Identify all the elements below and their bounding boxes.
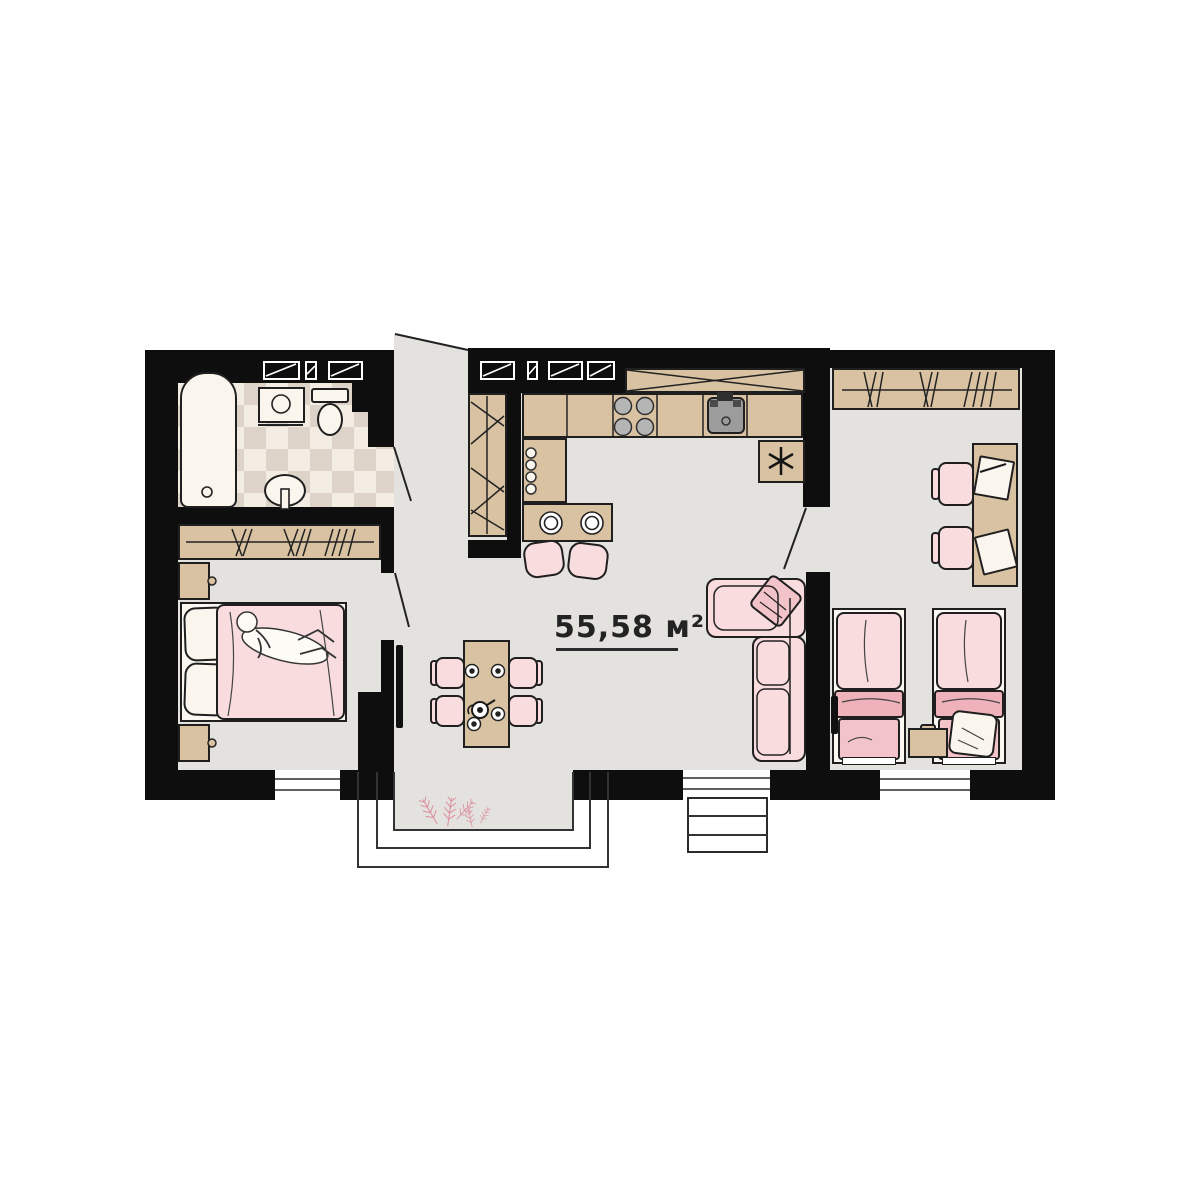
desk-chair-icon xyxy=(938,526,974,570)
wall-bedroom-left-stub xyxy=(381,524,394,573)
papers-icon xyxy=(973,455,1015,501)
toilet-tank-icon xyxy=(311,388,349,403)
toilet-bowl-icon xyxy=(317,403,343,436)
wall-living-bedroom-right xyxy=(806,572,830,770)
tv-icon xyxy=(396,645,403,728)
nightstand-icon xyxy=(178,562,210,600)
bed-base-strip xyxy=(842,757,896,765)
bathtub-icon xyxy=(180,372,237,508)
wardrobe-icon xyxy=(178,524,381,560)
wall-cabinets-icon xyxy=(625,368,805,393)
bed-fold-icon xyxy=(834,690,904,718)
wall-closet-stub xyxy=(468,540,521,558)
area-label-underline xyxy=(556,648,678,651)
nightstand-icon xyxy=(178,724,210,762)
kitchen-window-icon xyxy=(587,361,615,380)
hall-closet-icon xyxy=(468,393,507,537)
kitchen-window-icon xyxy=(527,361,538,380)
wall-bottom-5 xyxy=(970,770,1055,800)
bathroom-window-icon xyxy=(305,361,317,380)
bed-duvet-icon xyxy=(836,612,902,690)
breakfast-bar-icon xyxy=(522,503,613,542)
wall-right xyxy=(1022,350,1055,800)
wall-bottom-1 xyxy=(145,770,275,800)
wardrobe-icon xyxy=(832,368,1020,410)
floor-plan: 55,58 м² xyxy=(0,0,1200,1200)
side-steps-icon xyxy=(687,797,768,853)
bed-pillow-icon xyxy=(947,709,998,758)
terrace-door-icon xyxy=(683,770,770,800)
dining-chair-icon xyxy=(508,695,538,727)
wall-bathroom-right xyxy=(368,350,394,447)
porch-floor xyxy=(394,770,573,830)
corner-cabinet-icon xyxy=(522,438,567,503)
doorway-right-floor xyxy=(806,507,830,572)
tv-icon xyxy=(831,696,838,734)
dining-chair-icon xyxy=(435,657,465,689)
bar-chair-icon xyxy=(522,538,567,579)
bedroom-right-window-icon xyxy=(880,770,970,800)
dining-table-icon xyxy=(463,640,510,748)
wall-bottom-3 xyxy=(573,770,683,800)
nightstand-icon xyxy=(908,728,948,758)
area-label: 55,58 м² xyxy=(554,610,694,645)
pedestal-sink-icon xyxy=(264,474,306,507)
wall-top-bedroom-right xyxy=(830,350,1022,368)
wall-bottom-2 xyxy=(340,770,394,800)
bedroom-left-window-icon xyxy=(275,770,340,800)
fridge-icon xyxy=(758,440,805,483)
bed-blanket-icon xyxy=(216,604,345,720)
corner-sofa-seat xyxy=(752,636,806,762)
wall-bathroom-bedroom xyxy=(145,507,394,524)
kitchen-window-icon xyxy=(548,361,583,380)
bar-chair-icon xyxy=(566,541,610,582)
dining-chair-icon xyxy=(508,657,538,689)
bed-foot-icon xyxy=(838,718,900,760)
washbasin-icon xyxy=(258,387,305,423)
kitchen-sink-icon xyxy=(707,397,745,434)
wall-kitchen-right xyxy=(803,348,830,507)
desk-chair-icon xyxy=(938,462,974,506)
water-heater-box xyxy=(352,383,368,412)
kitchen-window-icon xyxy=(480,361,515,380)
bed-base-strip xyxy=(942,757,996,765)
bathroom-window-icon xyxy=(328,361,363,380)
countertop-icon xyxy=(522,393,803,438)
bathroom-window-icon xyxy=(263,361,300,380)
wall-closet-right xyxy=(507,393,521,558)
dining-chair-icon xyxy=(435,695,465,727)
wall-left xyxy=(145,350,178,800)
wall-bottom-4 xyxy=(770,770,880,800)
wall-bedroom-left-pier xyxy=(358,692,394,770)
bed-duvet-icon xyxy=(936,612,1002,690)
